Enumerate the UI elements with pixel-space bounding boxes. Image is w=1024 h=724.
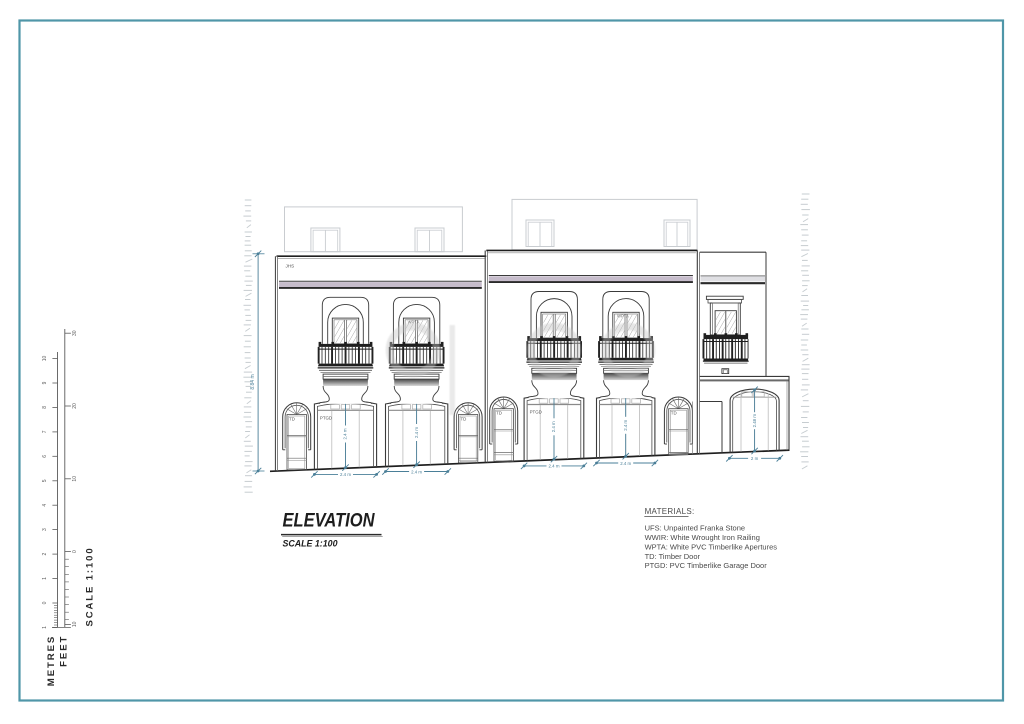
svg-text:1: 1 bbox=[42, 626, 48, 629]
svg-text:2.4 m: 2.4 m bbox=[343, 428, 348, 439]
svg-text:6: 6 bbox=[42, 455, 48, 458]
svg-text:TD: TD bbox=[496, 411, 502, 416]
svg-text:TD: TD bbox=[671, 411, 677, 416]
svg-text:TD: TD bbox=[461, 416, 467, 421]
svg-text:PTGD: PVC Timberlike Garage Do: PTGD: PVC Timberlike Garage Door bbox=[645, 561, 768, 570]
svg-text:2 m: 2 m bbox=[751, 456, 759, 461]
svg-text:SCALE 1:100: SCALE 1:100 bbox=[283, 538, 338, 548]
svg-text:UFS: Unpainted Franka Stone: UFS: Unpainted Franka Stone bbox=[645, 524, 745, 533]
svg-text:2.4 m: 2.4 m bbox=[620, 461, 631, 466]
svg-text:METRES: METRES bbox=[46, 635, 57, 686]
svg-text:FEET: FEET bbox=[58, 635, 69, 667]
svg-text:8: 8 bbox=[42, 406, 48, 409]
svg-text:8.84 m: 8.84 m bbox=[250, 374, 256, 389]
svg-text:SCALE 1:100: SCALE 1:100 bbox=[85, 546, 96, 626]
svg-text:MATERIALS:: MATERIALS: bbox=[645, 507, 695, 516]
svg-text:TD: TD bbox=[289, 416, 295, 421]
svg-text:WPTA: WPTA bbox=[617, 314, 629, 319]
svg-text:JHS: JHS bbox=[286, 264, 295, 269]
svg-text:2.4 m: 2.4 m bbox=[411, 469, 422, 474]
svg-text:5: 5 bbox=[42, 479, 48, 482]
svg-text:2.4 m: 2.4 m bbox=[414, 427, 419, 438]
svg-text:2.4 m: 2.4 m bbox=[340, 472, 351, 477]
svg-text:10: 10 bbox=[72, 476, 78, 482]
svg-text:2: 2 bbox=[42, 552, 48, 555]
svg-text:4: 4 bbox=[42, 504, 48, 507]
svg-text:30: 30 bbox=[72, 330, 78, 336]
svg-text:9: 9 bbox=[42, 381, 48, 384]
svg-text:0: 0 bbox=[72, 550, 78, 553]
svg-text:10: 10 bbox=[42, 356, 48, 362]
svg-text:3: 3 bbox=[42, 528, 48, 531]
svg-text:7: 7 bbox=[42, 430, 48, 433]
svg-text:PTGD: PTGD bbox=[530, 410, 542, 415]
svg-text:2.48 m: 2.48 m bbox=[752, 414, 757, 428]
svg-text:2.4 m: 2.4 m bbox=[549, 464, 560, 469]
svg-text:2.4 m: 2.4 m bbox=[551, 421, 556, 432]
svg-text:WPTA: White PVC Timberlike Ape: WPTA: White PVC Timberlike Apertures bbox=[645, 543, 778, 552]
svg-text:1: 1 bbox=[42, 577, 48, 580]
svg-text:PTGD: PTGD bbox=[320, 415, 332, 420]
svg-text:ELEVATION: ELEVATION bbox=[283, 509, 376, 531]
svg-text:20: 20 bbox=[72, 403, 78, 409]
svg-text:0: 0 bbox=[42, 601, 48, 604]
svg-text:2.4 m: 2.4 m bbox=[623, 419, 628, 430]
svg-text:TD: Timber Door: TD: Timber Door bbox=[645, 552, 701, 561]
svg-text:10: 10 bbox=[72, 621, 78, 627]
svg-text:WWIR: White Wrought Iron Raili: WWIR: White Wrought Iron Railing bbox=[645, 533, 760, 542]
